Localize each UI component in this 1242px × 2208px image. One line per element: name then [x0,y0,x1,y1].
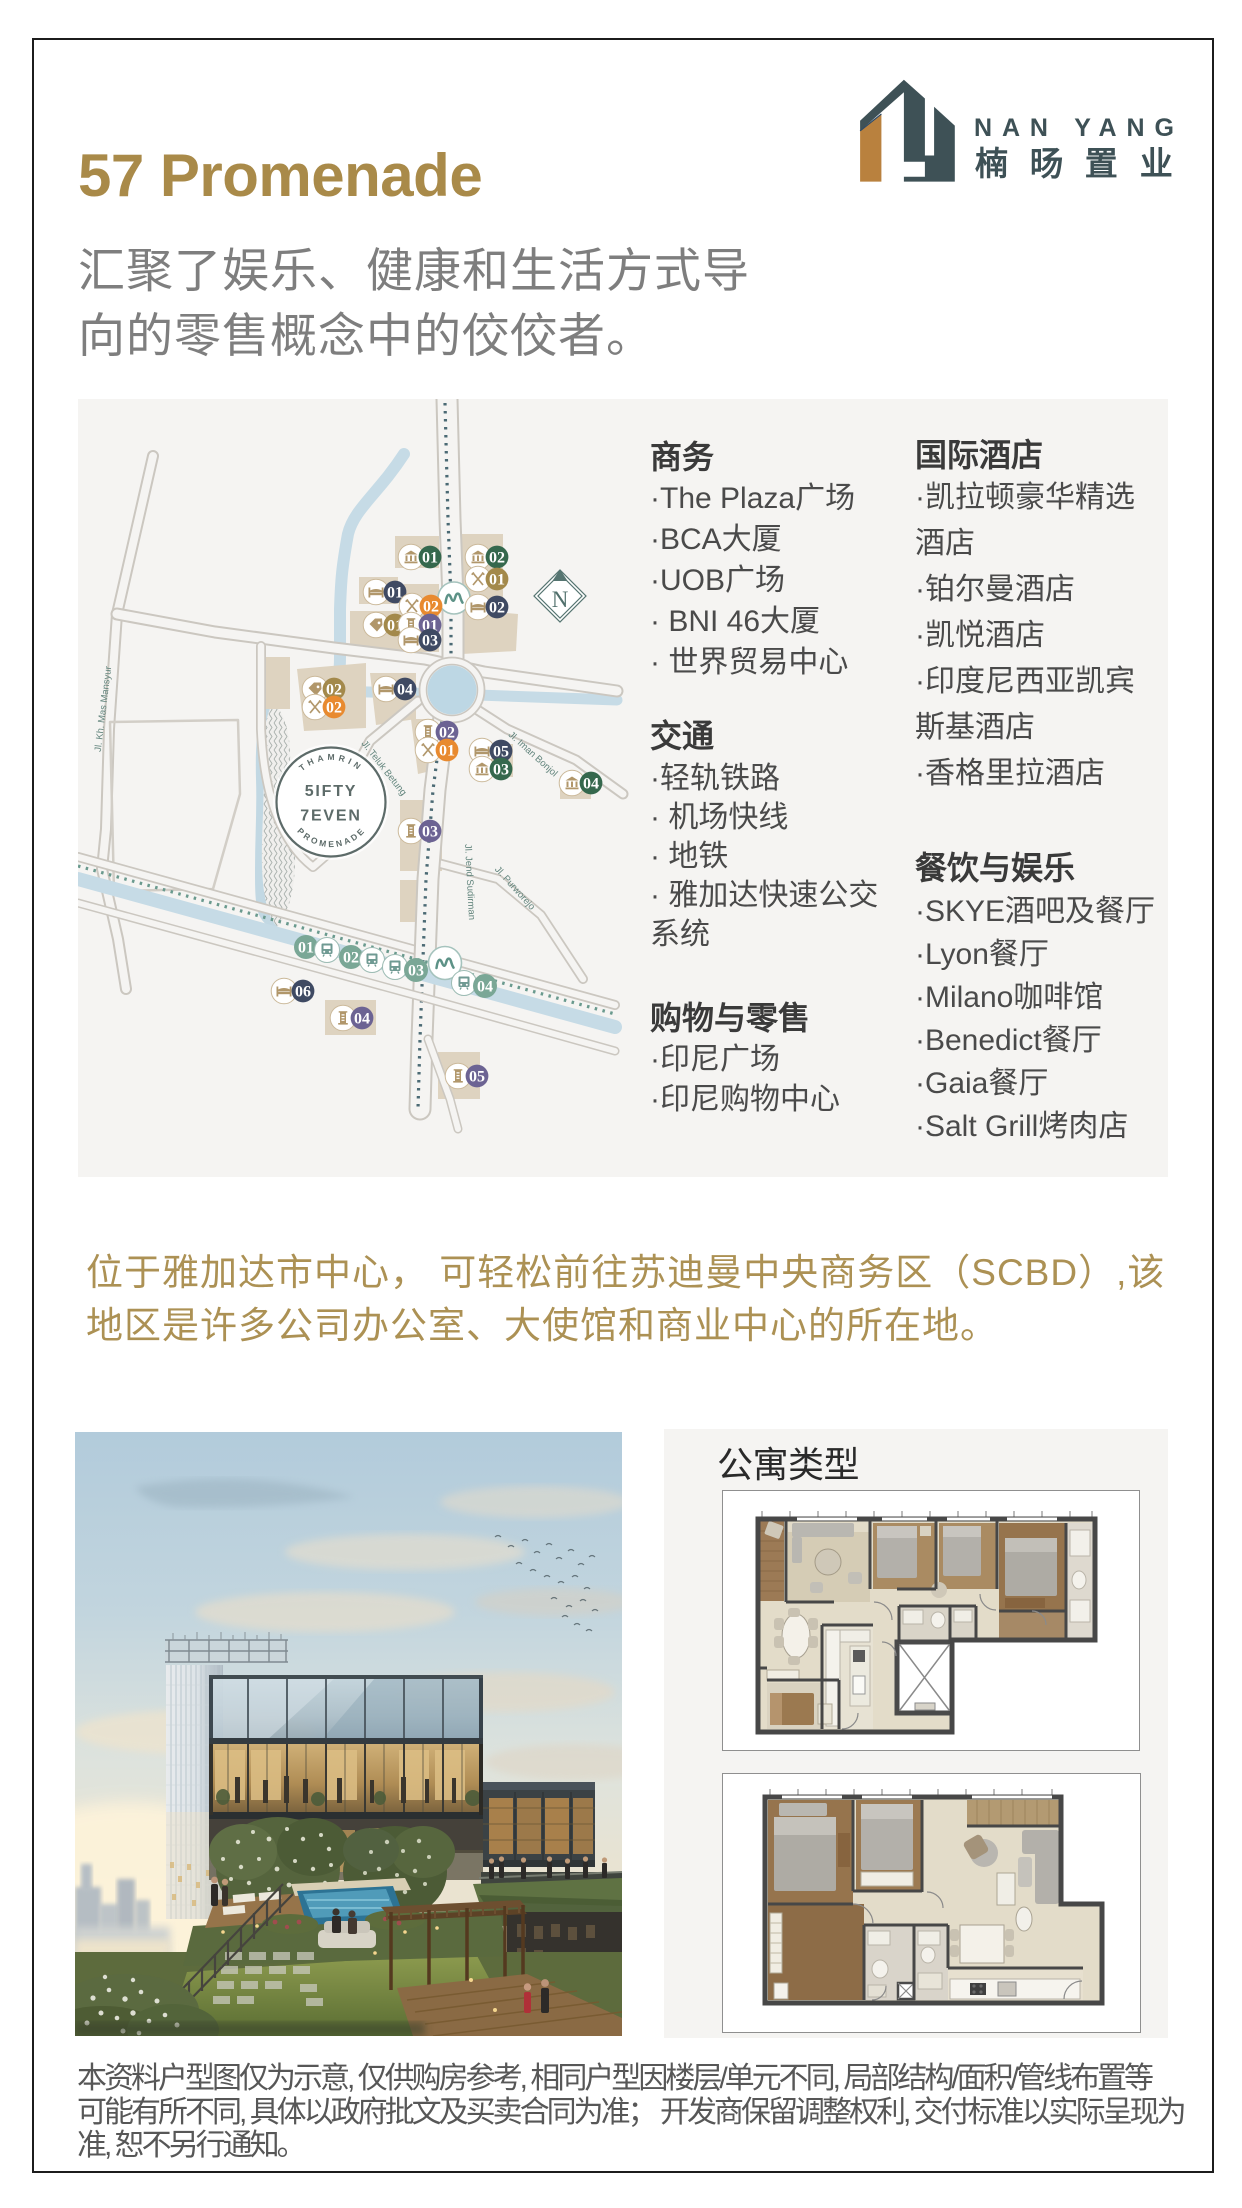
svg-text:N: N [552,587,569,612]
svg-text:02: 02 [423,599,439,616]
svg-text:02: 02 [489,550,505,567]
svg-text:02: 02 [326,700,342,717]
svg-text:01: 01 [439,743,455,760]
svg-text:01: 01 [387,585,403,602]
svg-text:02: 02 [343,950,359,967]
svg-text:01: 01 [298,940,314,957]
svg-text:04: 04 [477,979,493,996]
svg-text:5IFTY: 5IFTY [305,783,358,800]
svg-text:01: 01 [422,550,438,567]
svg-text:03: 03 [422,824,438,841]
svg-text:03: 03 [422,633,438,650]
svg-text:NAN YANG: NAN YANG [974,114,1184,142]
svg-text:楠旸置业: 楠旸置业 [975,145,1190,182]
svg-text:02: 02 [489,600,505,617]
svg-text:Jl. Jend Sudirman: Jl. Jend Sudirman [462,844,477,921]
svg-text:04: 04 [354,1011,370,1028]
svg-text:06: 06 [295,984,311,1001]
svg-text:03: 03 [493,762,509,779]
svg-text:01: 01 [489,572,505,589]
svg-text:7EVEN: 7EVEN [300,808,361,825]
svg-text:03: 03 [408,963,424,980]
svg-text:05: 05 [469,1069,485,1086]
svg-text:04: 04 [583,776,599,793]
svg-text:04: 04 [397,682,413,699]
svg-text:Jl. Purworejo: Jl. Purworejo [492,864,537,912]
